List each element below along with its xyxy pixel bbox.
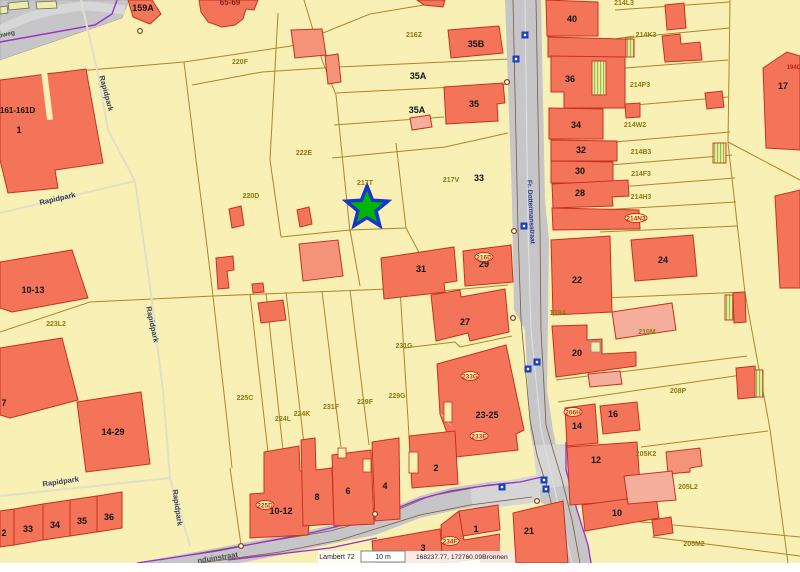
svg-text:35: 35 — [469, 99, 479, 109]
svg-text:139A: 139A — [550, 310, 567, 317]
svg-text:214W2: 214W2 — [624, 122, 646, 129]
svg-text:2: 2 — [433, 463, 438, 473]
svg-text:27: 27 — [460, 317, 470, 327]
svg-text:229F: 229F — [357, 399, 374, 406]
svg-text:220D: 220D — [243, 193, 260, 200]
svg-text:222E: 222E — [296, 150, 313, 157]
svg-text:216D: 216D — [476, 254, 492, 261]
svg-text:35B: 35B — [468, 39, 485, 49]
svg-text:214H3: 214H3 — [631, 194, 652, 201]
svg-text:4: 4 — [382, 481, 387, 491]
svg-text:225D: 225D — [257, 502, 273, 509]
svg-text:229G: 229G — [388, 393, 406, 400]
svg-text:33: 33 — [474, 173, 484, 183]
svg-text:6: 6 — [345, 486, 350, 496]
svg-text:20: 20 — [572, 348, 582, 358]
svg-text:35A: 35A — [409, 105, 426, 115]
svg-text:217T: 217T — [357, 180, 374, 187]
svg-text:161-161D: 161-161D — [0, 106, 35, 115]
svg-text:159A: 159A — [132, 3, 154, 13]
svg-text:214P3: 214P3 — [630, 82, 650, 89]
svg-text:2: 2 — [1, 528, 6, 538]
svg-text:36: 36 — [104, 512, 114, 522]
svg-text:210M: 210M — [638, 329, 656, 336]
svg-text:223L2: 223L2 — [46, 321, 66, 328]
svg-text:231F: 231F — [323, 404, 340, 411]
svg-text:32: 32 — [576, 145, 586, 155]
svg-text:224K: 224K — [294, 411, 311, 418]
svg-text:10: 10 — [612, 508, 622, 518]
svg-text:12: 12 — [591, 455, 601, 465]
svg-text:205K2: 205K2 — [636, 451, 657, 458]
svg-text:214L3: 214L3 — [614, 0, 634, 7]
svg-text:34: 34 — [571, 120, 581, 130]
svg-text:214N3: 214N3 — [626, 215, 646, 222]
svg-text:233G: 233G — [462, 373, 478, 380]
svg-text:22: 22 — [572, 275, 582, 285]
svg-text:14-29: 14-29 — [101, 427, 124, 437]
svg-text:34: 34 — [50, 520, 60, 530]
svg-text:28: 28 — [575, 188, 585, 198]
svg-text:21: 21 — [524, 526, 534, 536]
svg-text:214B3: 214B3 — [631, 149, 652, 156]
svg-text:206H: 206H — [565, 409, 581, 416]
svg-text:17: 17 — [778, 81, 788, 91]
svg-text:10-13: 10-13 — [21, 285, 44, 295]
svg-text:214F3: 214F3 — [631, 171, 651, 178]
svg-text:7: 7 — [1, 398, 6, 408]
svg-text:30: 30 — [575, 166, 585, 176]
svg-text:Lambert 72: Lambert 72 — [319, 554, 355, 561]
svg-text:10 m: 10 m — [375, 554, 391, 561]
svg-text:220F: 220F — [232, 59, 249, 66]
svg-text:1: 1 — [473, 524, 478, 534]
svg-text:205M2: 205M2 — [683, 541, 705, 548]
svg-text:234F: 234F — [443, 538, 458, 545]
svg-text:8: 8 — [314, 492, 319, 502]
svg-text:214K3: 214K3 — [636, 32, 657, 39]
svg-text:Bronnen: Bronnen — [482, 554, 508, 561]
svg-text:205L2: 205L2 — [678, 484, 698, 491]
svg-text:23-25: 23-25 — [475, 410, 498, 420]
svg-text:40: 40 — [567, 14, 577, 24]
svg-text:35A: 35A — [410, 71, 427, 81]
svg-text:194G: 194G — [787, 65, 800, 71]
svg-text:35: 35 — [77, 516, 87, 526]
svg-text:216Z: 216Z — [406, 32, 423, 39]
svg-text:1: 1 — [16, 125, 21, 135]
svg-text:65-69: 65-69 — [220, 0, 241, 7]
svg-text:36: 36 — [565, 74, 575, 84]
svg-text:33: 33 — [23, 524, 33, 534]
svg-text:224L: 224L — [275, 416, 292, 423]
svg-text:217V: 217V — [443, 177, 460, 184]
svg-text:31: 31 — [416, 264, 426, 274]
svg-text:225C: 225C — [237, 395, 254, 402]
svg-text:14: 14 — [572, 421, 582, 431]
svg-text:231G: 231G — [395, 343, 413, 350]
svg-text:24: 24 — [658, 255, 668, 265]
svg-text:208P: 208P — [670, 388, 687, 395]
svg-text:168237.77, 172760.09: 168237.77, 172760.09 — [416, 554, 482, 561]
svg-text:16: 16 — [608, 409, 618, 419]
svg-text:233E: 233E — [471, 433, 487, 440]
